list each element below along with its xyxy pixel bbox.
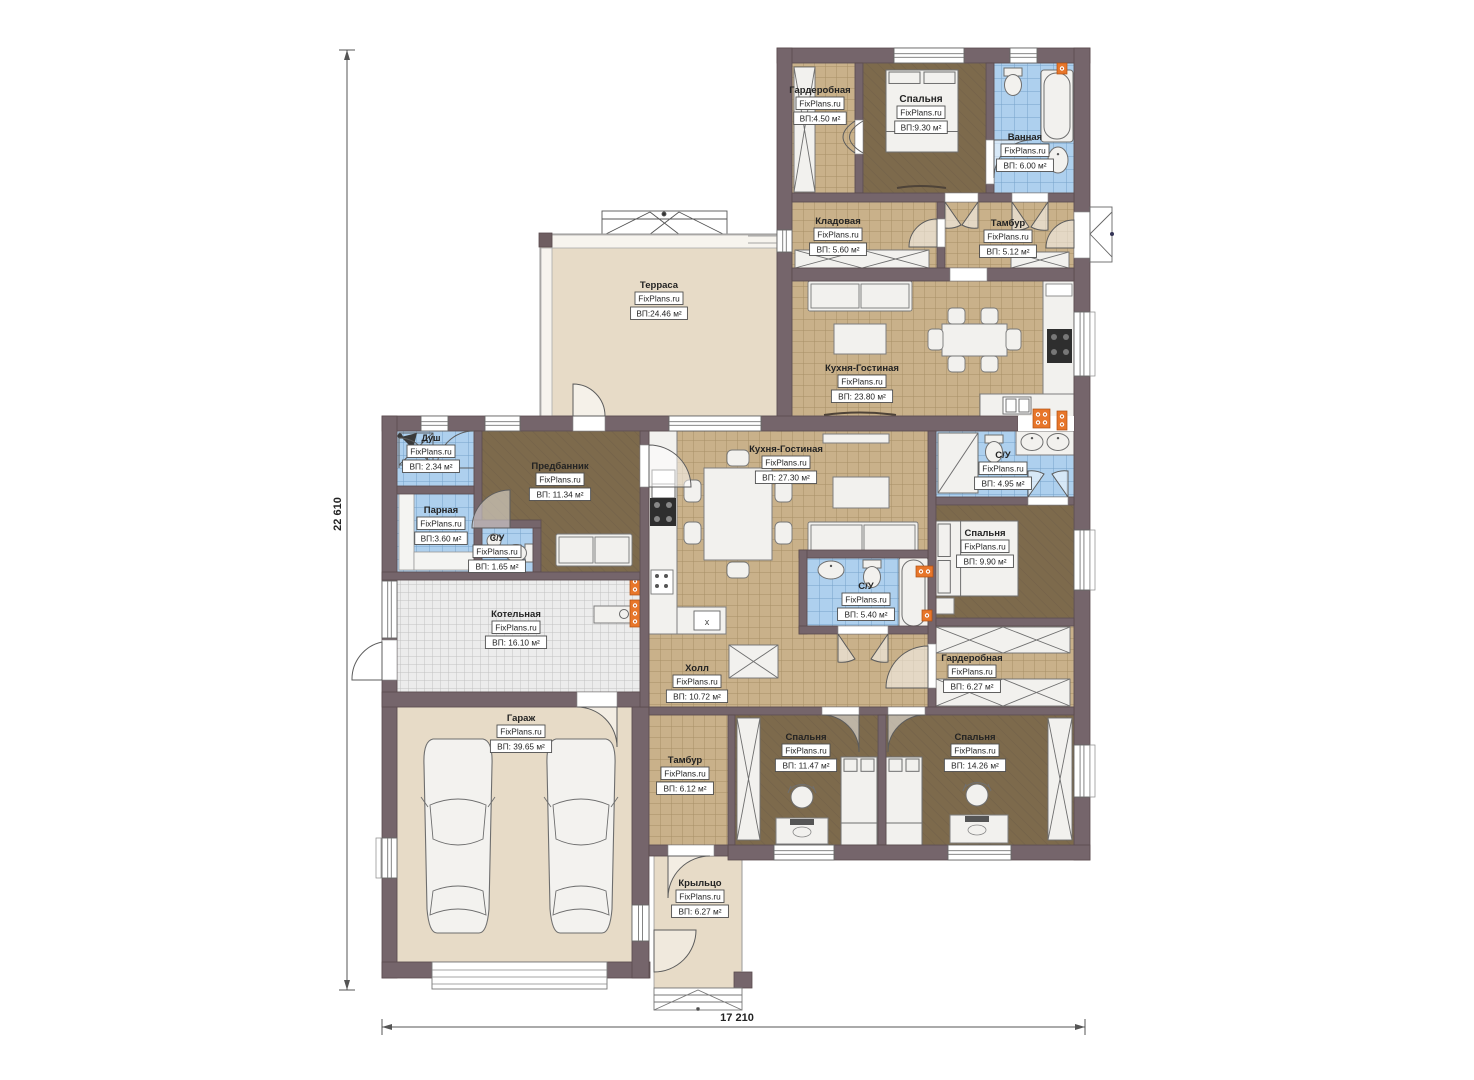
svg-text:FixPlans.ru: FixPlans.ru (765, 458, 807, 468)
svg-text:ВП: 10.72 м²: ВП: 10.72 м² (673, 692, 721, 702)
svg-text:ВП:9.30 м²: ВП:9.30 м² (901, 123, 942, 133)
svg-text:ВП: 6.27 м²: ВП: 6.27 м² (950, 682, 993, 692)
svg-text:FixPlans.ru: FixPlans.ru (841, 377, 883, 387)
svg-text:Кухня-Гостиная: Кухня-Гостиная (825, 363, 899, 374)
svg-text:Кладовая: Кладовая (815, 216, 861, 227)
svg-text:ВП: 1.65 м²: ВП: 1.65 м² (475, 562, 518, 572)
svg-text:22 610: 22 610 (332, 497, 344, 531)
svg-text:FixPlans.ru: FixPlans.ru (500, 727, 542, 737)
svg-text:Спальня: Спальня (785, 732, 826, 743)
svg-text:FixPlans.ru: FixPlans.ru (410, 447, 452, 457)
svg-text:Гардеробная: Гардеробная (941, 653, 1002, 664)
svg-text:FixPlans.ru: FixPlans.ru (664, 769, 706, 779)
svg-text:Кухня-Гостиная: Кухня-Гостиная (749, 444, 823, 455)
svg-text:Душ: Душ (421, 433, 440, 443)
svg-text:ВП: 2.34 м²: ВП: 2.34 м² (409, 462, 452, 472)
svg-text:ВП: 6.00 м²: ВП: 6.00 м² (1003, 161, 1046, 171)
svg-text:FixPlans.ru: FixPlans.ru (954, 746, 996, 756)
svg-text:ВП: 5.12 м²: ВП: 5.12 м² (986, 247, 1029, 257)
svg-text:Котельная: Котельная (491, 609, 541, 620)
svg-text:FixPlans.ru: FixPlans.ru (676, 677, 718, 687)
svg-text:ВП:24.46 м²: ВП:24.46 м² (636, 309, 682, 319)
svg-text:FixPlans.ru: FixPlans.ru (845, 595, 887, 605)
svg-text:ВП: 4.95 м²: ВП: 4.95 м² (981, 479, 1024, 489)
svg-text:ВП:4.50 м²: ВП:4.50 м² (800, 114, 841, 124)
svg-text:FixPlans.ru: FixPlans.ru (539, 475, 581, 485)
svg-text:Гардеробная: Гардеробная (789, 85, 850, 96)
svg-text:FixPlans.ru: FixPlans.ru (817, 230, 859, 240)
svg-text:ВП: 6.12 м²: ВП: 6.12 м² (663, 784, 706, 794)
svg-text:ВП: 11.47 м²: ВП: 11.47 м² (782, 761, 829, 771)
svg-text:Парная: Парная (424, 505, 458, 516)
svg-text:ВП: 14.26 м²: ВП: 14.26 м² (951, 761, 999, 771)
svg-text:ВП: 11.34 м²: ВП: 11.34 м² (536, 490, 583, 500)
svg-text:ВП: 6.27 м²: ВП: 6.27 м² (678, 907, 721, 917)
svg-text:Спальня: Спальня (899, 94, 942, 105)
svg-text:С/У: С/У (858, 581, 874, 592)
svg-text:17 210: 17 210 (720, 1012, 754, 1024)
svg-text:FixPlans.ru: FixPlans.ru (420, 519, 462, 529)
svg-text:ВП: 27.30 м²: ВП: 27.30 м² (762, 473, 810, 483)
svg-text:x: x (705, 617, 710, 627)
svg-text:ВП: 23.80 м²: ВП: 23.80 м² (838, 392, 886, 402)
svg-text:ВП: 5.40 м²: ВП: 5.40 м² (844, 610, 887, 620)
svg-text:ВП: 16.10 м²: ВП: 16.10 м² (492, 638, 540, 648)
svg-text:FixPlans.ru: FixPlans.ru (799, 99, 841, 109)
svg-text:FixPlans.ru: FixPlans.ru (476, 547, 518, 557)
svg-text:FixPlans.ru: FixPlans.ru (951, 667, 993, 677)
svg-text:Тамбур: Тамбур (991, 218, 1026, 229)
svg-text:Крыльцо: Крыльцо (678, 878, 721, 889)
svg-text:Тамбур: Тамбур (668, 755, 703, 766)
svg-text:Спальня: Спальня (954, 732, 995, 743)
svg-text:Терраса: Терраса (640, 280, 679, 291)
svg-text:Предбанник: Предбанник (531, 461, 588, 472)
svg-text:FixPlans.ru: FixPlans.ru (964, 542, 1006, 552)
svg-text:ВП: 39.65 м²: ВП: 39.65 м² (497, 742, 545, 752)
svg-text:FixPlans.ru: FixPlans.ru (785, 746, 827, 756)
svg-text:Ванная: Ванная (1008, 132, 1042, 143)
svg-text:С/У: С/У (995, 450, 1011, 461)
svg-text:FixPlans.ru: FixPlans.ru (638, 294, 680, 304)
svg-text:FixPlans.ru: FixPlans.ru (1004, 146, 1046, 156)
svg-text:Спальня: Спальня (964, 528, 1005, 539)
svg-text:FixPlans.ru: FixPlans.ru (982, 464, 1024, 474)
svg-text:Холл: Холл (685, 663, 709, 674)
svg-text:FixPlans.ru: FixPlans.ru (987, 232, 1029, 242)
svg-text:FixPlans.ru: FixPlans.ru (900, 108, 942, 118)
svg-text:Гараж: Гараж (507, 713, 536, 724)
svg-text:FixPlans.ru: FixPlans.ru (495, 623, 537, 633)
svg-text:С/У: С/У (490, 533, 505, 543)
svg-text:ВП: 5.60 м²: ВП: 5.60 м² (816, 245, 859, 255)
svg-text:FixPlans.ru: FixPlans.ru (679, 892, 721, 902)
svg-text:ВП:3.60 м²: ВП:3.60 м² (421, 534, 462, 544)
svg-text:ВП: 9.90 м²: ВП: 9.90 м² (963, 557, 1006, 567)
